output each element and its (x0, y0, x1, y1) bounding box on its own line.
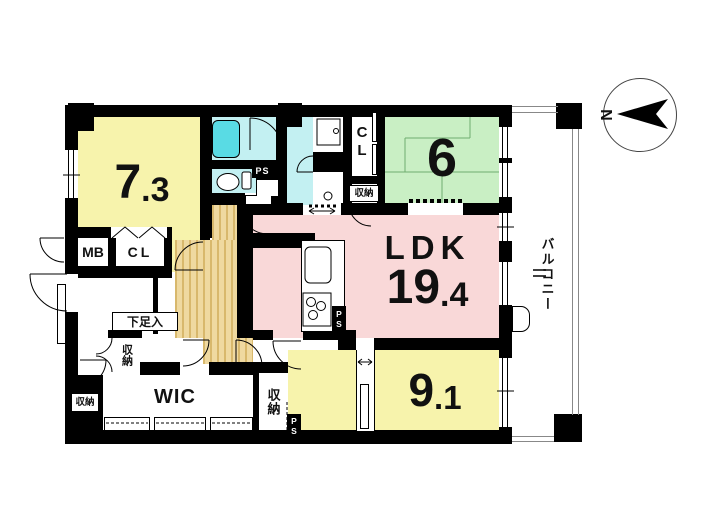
window-bedroom2 (499, 358, 512, 427)
balcony-post-bottom (554, 414, 582, 442)
wall-bath-wash (276, 112, 287, 162)
storage-a-label: 収納 (349, 185, 379, 202)
wic-closet-1 (104, 417, 150, 431)
balcony-rail-right1 (572, 129, 573, 415)
window-tatami-mullion (499, 158, 512, 163)
wall-ldk-91-e (374, 338, 502, 350)
ldk-size: 19.4 (350, 263, 505, 315)
wall-ldk-91-w (338, 338, 356, 350)
washbasin (317, 119, 340, 145)
bedroom2-size: 9.1 (385, 363, 485, 417)
mb-label: MB (78, 240, 108, 264)
window-ldk-1 (499, 213, 512, 241)
wall-wic-top-w (140, 362, 180, 375)
compass-north-label: N (598, 105, 618, 125)
ps-shaft-kitchen: PS (332, 306, 346, 332)
door-mb (40, 238, 64, 262)
wall-hall-ldk (237, 205, 253, 338)
ps-shaft-toilet: PS (252, 163, 273, 178)
floor-plan: バルコニー 下足入 収納 収納 収納 収納 PS PS PS N (0, 0, 705, 525)
porch-window (57, 284, 66, 344)
storage-d-label: 収納 (259, 376, 287, 428)
wall-ldk-north-m (341, 203, 408, 215)
cl-entry-label: CL (116, 240, 164, 264)
bedroom1-size: 7.3 (96, 148, 188, 210)
balcony-rail-top2 (512, 112, 558, 113)
balcony-faucet (512, 306, 530, 332)
washing-machine-mark (324, 192, 332, 200)
hallway-upper (212, 203, 237, 240)
sliding-leaf-bedroom2 (360, 384, 369, 429)
balcony-label: バルコニー (536, 208, 558, 340)
entry-door-gap (65, 274, 78, 312)
ps-shaft-bedroom2: PS (287, 414, 301, 438)
balcony-post-top (556, 103, 582, 129)
wall-annex-n-w (253, 330, 273, 340)
toilet-side-patch (257, 180, 278, 196)
bathtub (212, 120, 240, 158)
wall-cl-storage (343, 176, 385, 184)
tatami-size: 6 (412, 128, 472, 188)
wic-label: WIC (135, 385, 215, 409)
cl-hall-leaf2 (372, 144, 377, 175)
balcony-rail-bottom1 (512, 436, 554, 437)
window-bedroom1 (65, 150, 78, 198)
bifold-strip (111, 227, 167, 238)
wall-storageb-top (108, 330, 142, 338)
shoe-cabinet-label: 下足入 (112, 312, 178, 331)
wic-closet-3 (210, 417, 253, 431)
storage-b-label: 収納 (112, 338, 140, 372)
wall-wic-top-e (209, 362, 255, 375)
balcony-rail-bottom2 (512, 441, 554, 442)
wall-toilet-bottom (210, 193, 245, 205)
storage-b-door-area (95, 338, 112, 372)
hallway-main (175, 240, 237, 338)
wall-corner-tl (68, 103, 94, 131)
storage-c-label: 収納 (71, 393, 99, 412)
balcony-rail-top1 (512, 106, 558, 107)
wic-closet-2 (154, 417, 206, 431)
cl-hall-label: CL (352, 113, 372, 171)
wall-washband (313, 152, 343, 172)
slide-arrow-kitchen (309, 208, 335, 214)
hallway-lower (203, 338, 253, 364)
ldk-door-leaf (245, 195, 272, 205)
wall-ldk-north-e (463, 203, 499, 215)
cl-hall-leaf1 (372, 112, 377, 142)
wall-toilet-bottom-l (200, 193, 210, 240)
wall-wic-left (100, 375, 103, 431)
balcony-rail-right2 (578, 129, 579, 415)
toilet-floor (210, 169, 256, 193)
